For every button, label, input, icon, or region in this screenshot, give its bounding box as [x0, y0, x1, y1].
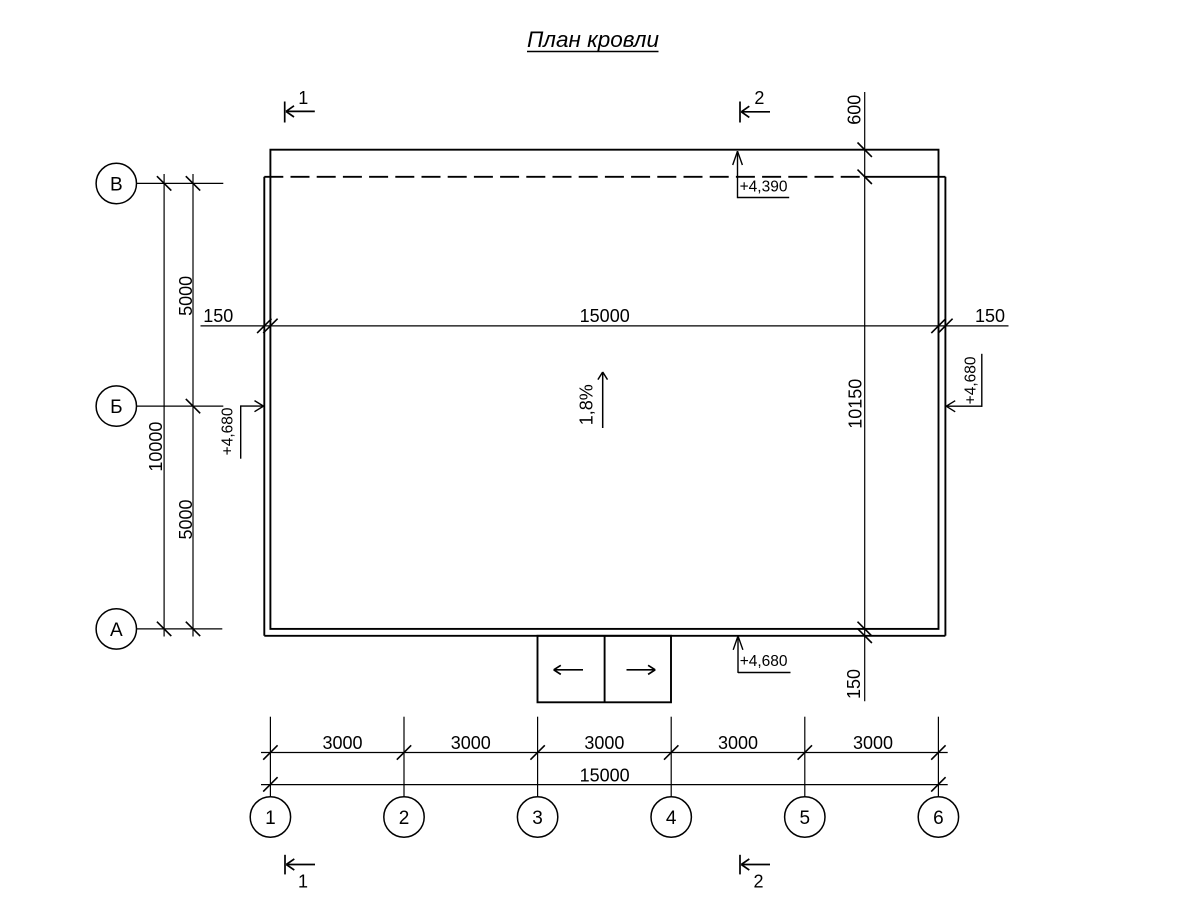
svg-text:150: 150	[975, 306, 1005, 326]
svg-text:1: 1	[298, 88, 308, 108]
svg-text:+4,680: +4,680	[740, 653, 788, 670]
svg-text:15000: 15000	[580, 765, 630, 785]
svg-text:150: 150	[844, 669, 864, 699]
svg-text:3: 3	[532, 808, 543, 829]
svg-text:3000: 3000	[322, 733, 362, 753]
svg-text:+4,680: +4,680	[963, 356, 980, 404]
svg-text:3000: 3000	[853, 733, 893, 753]
svg-text:6: 6	[933, 808, 944, 829]
svg-text:3000: 3000	[584, 733, 624, 753]
svg-text:5: 5	[800, 808, 811, 829]
svg-text:600: 600	[845, 95, 865, 125]
svg-text:2: 2	[754, 88, 764, 108]
svg-text:3000: 3000	[718, 733, 758, 753]
svg-text:А: А	[110, 620, 123, 641]
svg-text:План кровли: План кровли	[527, 27, 659, 52]
svg-text:В: В	[110, 174, 123, 195]
svg-text:5000: 5000	[176, 499, 196, 539]
svg-text:2: 2	[753, 872, 763, 892]
svg-text:Б: Б	[110, 397, 122, 418]
svg-text:3000: 3000	[451, 733, 491, 753]
svg-text:15000: 15000	[580, 306, 630, 326]
svg-text:1: 1	[265, 808, 276, 829]
svg-text:10150: 10150	[846, 379, 866, 429]
svg-text:4: 4	[666, 808, 677, 829]
svg-text:1: 1	[298, 872, 308, 892]
svg-text:+4,680: +4,680	[220, 407, 237, 455]
svg-text:10000: 10000	[146, 422, 166, 472]
svg-text:150: 150	[203, 306, 233, 326]
svg-text:1,8%: 1,8%	[576, 384, 596, 425]
svg-text:2: 2	[399, 808, 410, 829]
svg-text:+4,390: +4,390	[740, 178, 788, 195]
svg-text:5000: 5000	[176, 276, 196, 316]
